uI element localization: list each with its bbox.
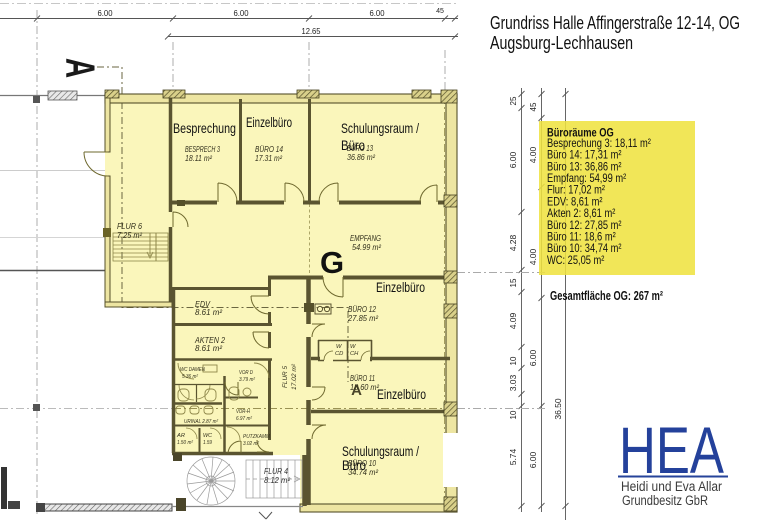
svg-text:17.31 m²: 17.31 m² (255, 154, 282, 163)
svg-text:VOR-H: VOR-H (236, 409, 251, 415)
svg-text:17.02 m²: 17.02 m² (291, 363, 298, 390)
svg-text:3.02 m²: 3.02 m² (243, 441, 260, 447)
svg-text:WC: WC (203, 433, 213, 439)
svg-text:CD: CD (335, 351, 343, 357)
svg-text:4.28: 4.28 (508, 234, 518, 251)
svg-text:10: 10 (509, 410, 518, 419)
svg-text:36.86 m²: 36.86 m² (347, 153, 375, 162)
svg-text:25: 25 (509, 96, 518, 105)
svg-text:3.03: 3.03 (508, 374, 518, 391)
svg-text:5.36 m²: 5.36 m² (182, 374, 199, 380)
svg-text:WC DAMEN: WC DAMEN (180, 367, 206, 373)
svg-text:27.85 m²: 27.85 m² (347, 314, 378, 323)
svg-text:Einzelbüro: Einzelbüro (377, 386, 426, 402)
svg-text:WC: 25,05 m²: WC: 25,05 m² (547, 253, 604, 267)
svg-text:4.09: 4.09 (508, 312, 518, 329)
svg-text:45: 45 (529, 102, 538, 111)
svg-text:4.00: 4.00 (528, 146, 538, 163)
svg-text:AR: AR (176, 433, 186, 439)
svg-text:10: 10 (509, 356, 518, 365)
svg-text:Grundbesitz GbR: Grundbesitz GbR (622, 493, 708, 508)
svg-text:A: A (57, 58, 102, 78)
svg-text:3.79 m²: 3.79 m² (239, 377, 256, 383)
svg-text:1.59: 1.59 (203, 440, 213, 446)
svg-text:4.00: 4.00 (528, 248, 538, 265)
svg-text:6.00: 6.00 (528, 451, 538, 468)
svg-text:Einzelbüro: Einzelbüro (246, 114, 292, 130)
svg-text:8.12 m²: 8.12 m² (264, 476, 290, 485)
svg-text:BESPRECH 3: BESPRECH 3 (185, 145, 220, 154)
svg-text:W: W (350, 344, 356, 350)
svg-text:45: 45 (436, 8, 444, 15)
svg-text:Büro: Büro (341, 137, 365, 153)
svg-text:BÜRO 12: BÜRO 12 (348, 305, 376, 314)
svg-text:5.74: 5.74 (508, 448, 518, 465)
svg-text:FLUR 5: FLUR 5 (282, 366, 289, 388)
svg-text:VOR D: VOR D (239, 370, 253, 376)
svg-text:Grundriss Halle Affingerstraße: Grundriss Halle Affingerstraße 12-14, OG (490, 12, 740, 33)
svg-text:18.60 m²: 18.60 m² (350, 383, 379, 392)
svg-text:CH: CH (350, 351, 359, 357)
svg-text:EMPFANG: EMPFANG (350, 234, 381, 243)
svg-text:URINAL 2.87 m²: URINAL 2.87 m² (184, 419, 219, 425)
svg-text:1.50 m²: 1.50 m² (177, 440, 194, 446)
svg-text:Gesamtfläche OG: 267 m²: Gesamtfläche OG: 267 m² (550, 289, 663, 303)
svg-text:BÜRO 14: BÜRO 14 (255, 145, 283, 154)
svg-text:6.97 m²: 6.97 m² (236, 416, 253, 422)
svg-text:FLUR 4: FLUR 4 (264, 467, 288, 476)
svg-text:Augsburg-Lechhausen: Augsburg-Lechhausen (490, 32, 633, 53)
svg-text:8.61 m²: 8.61 m² (195, 308, 222, 317)
svg-text:6.00: 6.00 (508, 151, 518, 168)
svg-text:54.99 m²: 54.99 m² (352, 243, 381, 252)
svg-text:Schulungsraum /: Schulungsraum / (341, 120, 419, 136)
svg-text:Heidi und Eva Allar: Heidi und Eva Allar (621, 479, 722, 494)
svg-text:Büro: Büro (342, 457, 366, 473)
svg-text:8.61 m²: 8.61 m² (195, 344, 222, 353)
svg-text:6.00: 6.00 (370, 9, 386, 18)
svg-text:PUTZKAMM: PUTZKAMM (243, 434, 270, 440)
svg-text:6.00: 6.00 (234, 9, 250, 18)
svg-text:G: G (320, 245, 344, 280)
svg-text:Besprechung: Besprechung (173, 120, 236, 136)
svg-text:15: 15 (509, 278, 518, 287)
svg-text:18.11 m²: 18.11 m² (185, 154, 212, 163)
svg-text:Einzelbüro: Einzelbüro (376, 279, 425, 295)
svg-text:BÜRO 11: BÜRO 11 (350, 374, 375, 383)
svg-text:7.25 m²: 7.25 m² (117, 231, 142, 240)
svg-text:W: W (336, 344, 342, 350)
svg-text:36.50: 36.50 (553, 398, 563, 420)
svg-text:FLUR 6: FLUR 6 (117, 222, 142, 231)
svg-text:6.00: 6.00 (528, 349, 538, 366)
svg-text:12.65: 12.65 (302, 27, 322, 36)
svg-text:6.00: 6.00 (98, 9, 114, 18)
